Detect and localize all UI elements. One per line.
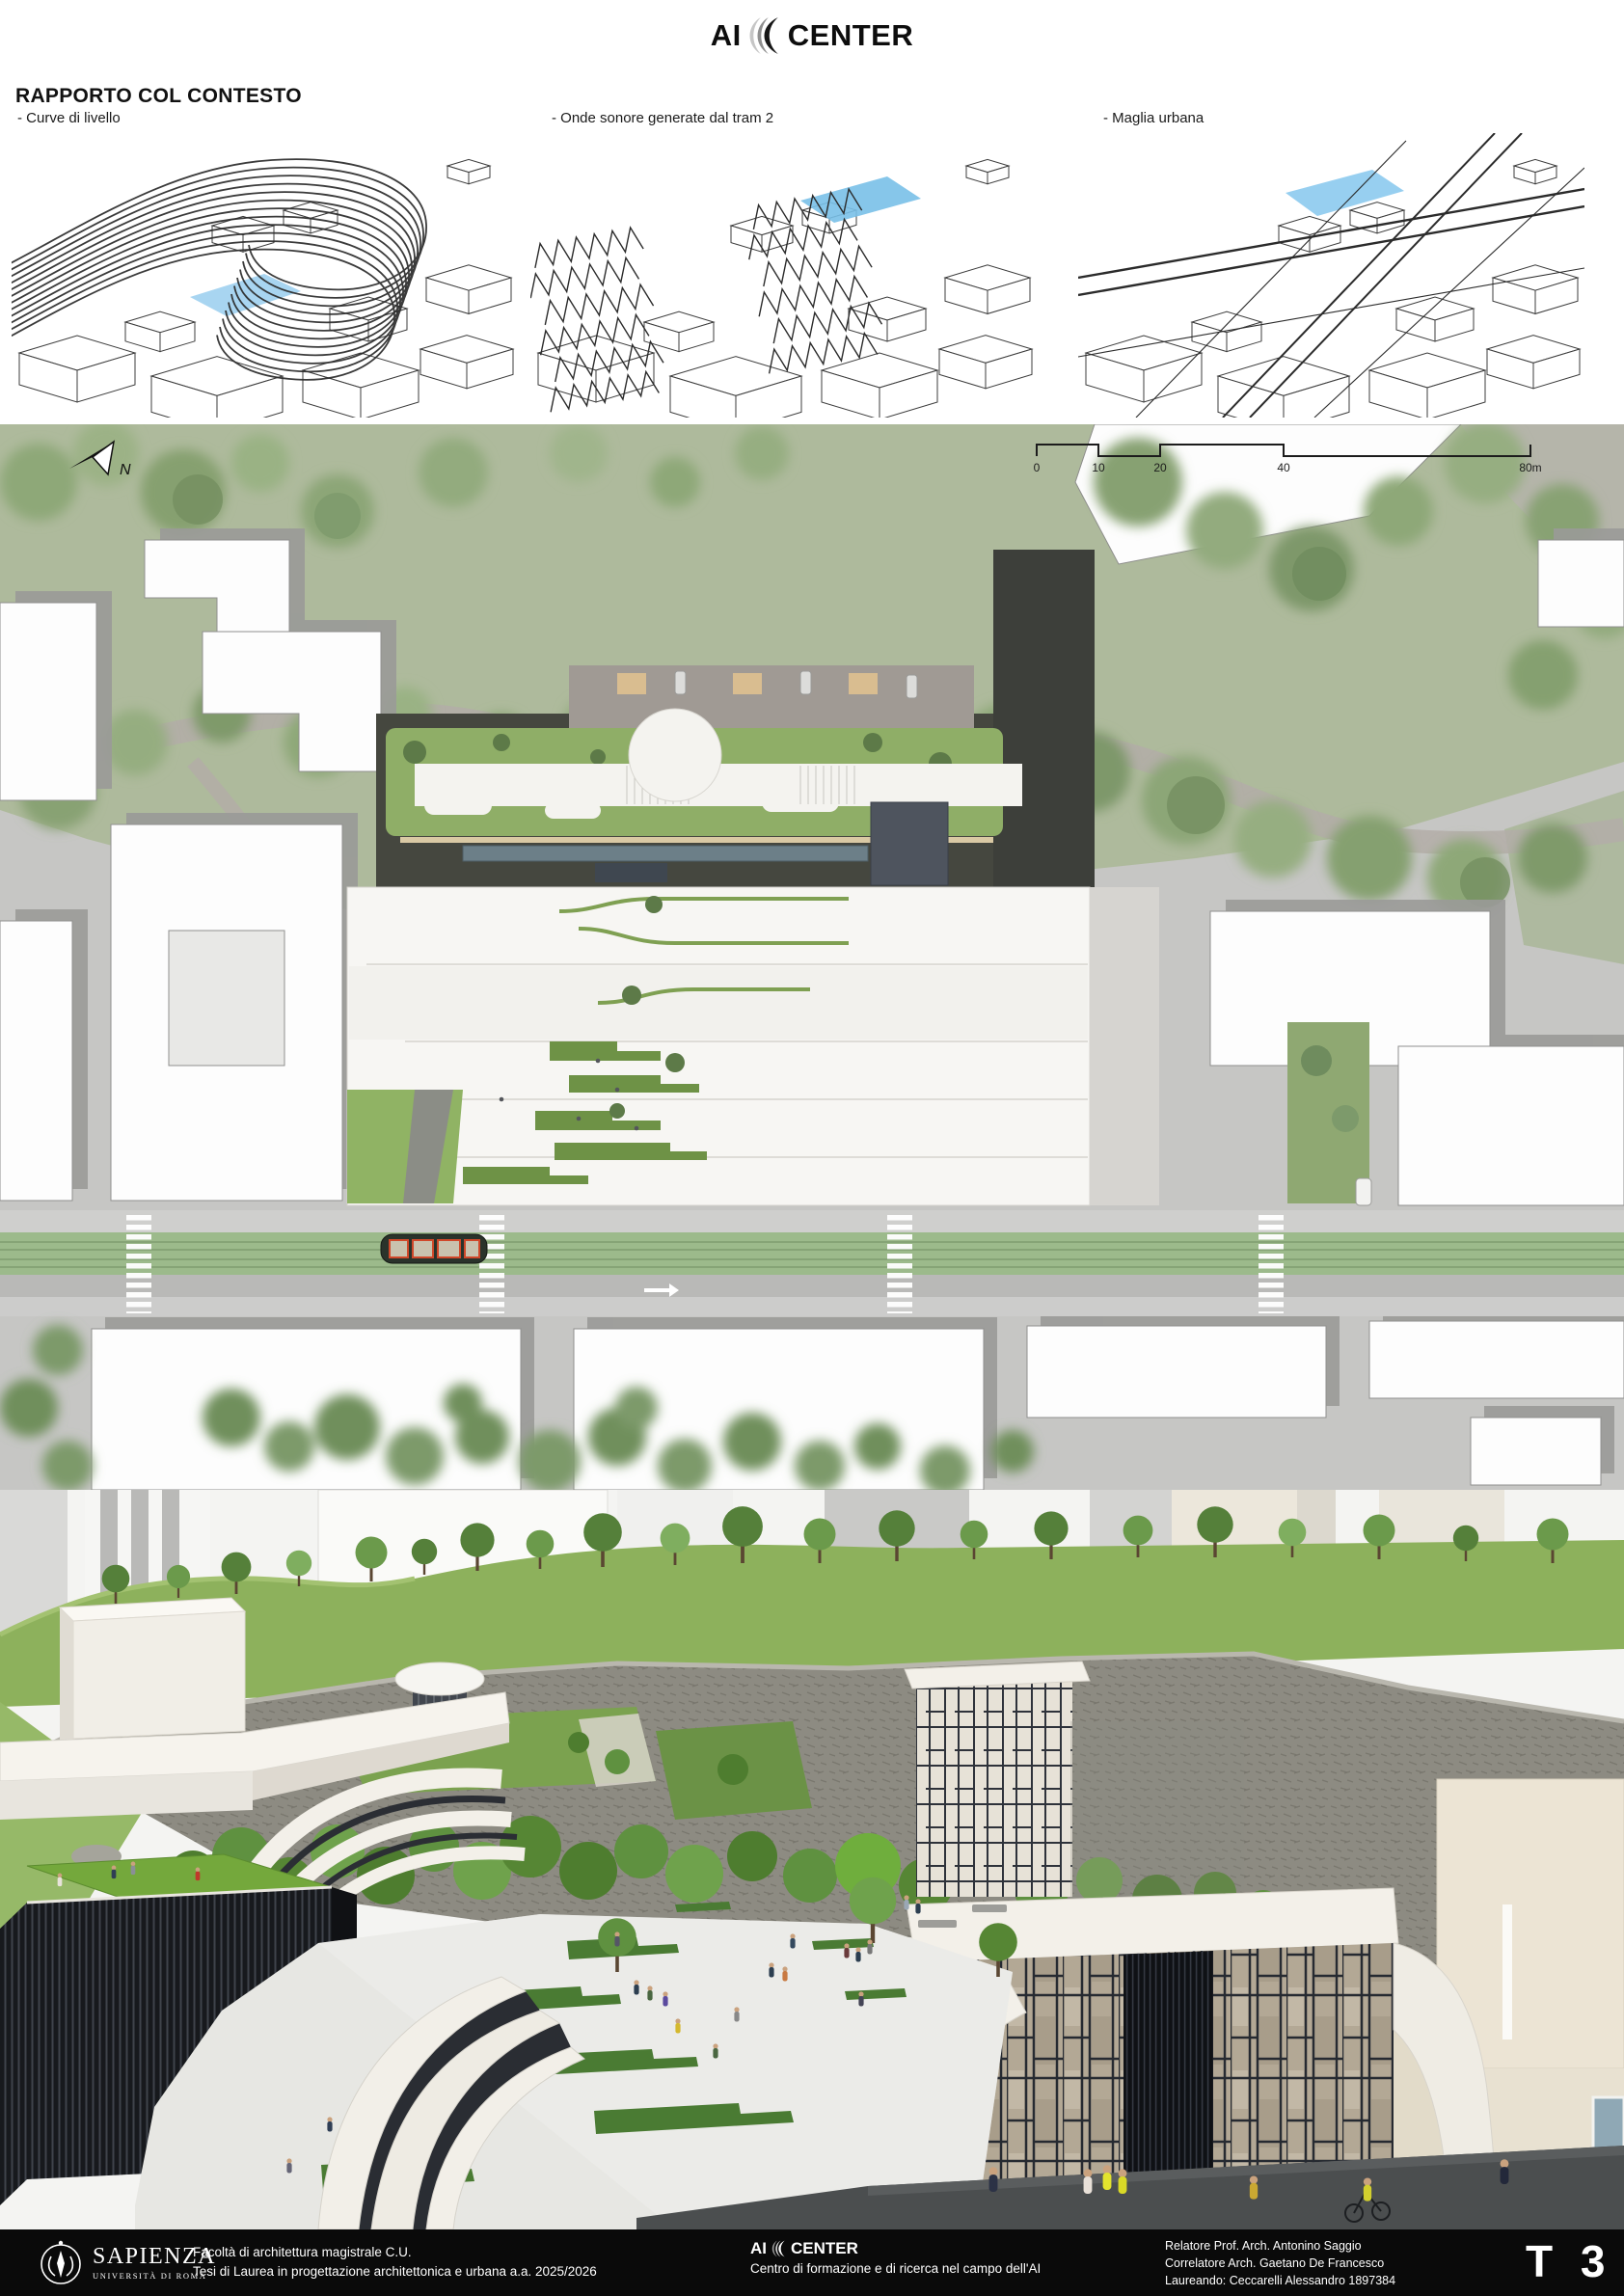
diagram-sound-waves: - Onde sonore generate dal tram 2 bbox=[530, 110, 1042, 418]
upper-grid-volume bbox=[905, 1661, 1090, 1897]
perspective-render bbox=[0, 1490, 1624, 2229]
car bbox=[1356, 1178, 1371, 1205]
tram-corridor bbox=[0, 1210, 1624, 1316]
faculty-line1: Facoltà di architettura magistrale C.U. bbox=[193, 2243, 597, 2262]
linear-pool bbox=[463, 846, 868, 861]
building-footprint bbox=[1398, 1046, 1624, 1205]
building-footprint bbox=[1471, 1418, 1601, 1485]
building-footprint bbox=[0, 603, 96, 800]
svg-text:0: 0 bbox=[1034, 461, 1041, 474]
skylight bbox=[595, 863, 667, 882]
credit-correlatore: Correlatore Arch. Gaetano De Francesco bbox=[1165, 2255, 1395, 2273]
building-footprint bbox=[1369, 1321, 1624, 1398]
logo-text-center: CENTER bbox=[788, 18, 913, 53]
north-label: N bbox=[120, 462, 131, 478]
diagram-grid-label: - Maglia urbana bbox=[1078, 110, 1589, 133]
thesis-credits: Relatore Prof. Arch. Antonino Saggio Cor… bbox=[1165, 2238, 1395, 2289]
project-logo-wave-icon bbox=[771, 2239, 786, 2258]
building-footprint bbox=[1538, 540, 1624, 627]
diagram-urban-grid: - Maglia urbana bbox=[1078, 110, 1589, 418]
tram-green-track bbox=[0, 1232, 1624, 1275]
credit-laureando: Laureando: Ceccarelli Alessandro 1897384 bbox=[1165, 2273, 1395, 2290]
svg-text:10: 10 bbox=[1092, 461, 1105, 474]
project-info: AI CENTER Centro di formazione e di rice… bbox=[750, 2239, 1041, 2276]
faculty-line2: Tesi di Laurea in progettazione architet… bbox=[193, 2262, 597, 2282]
white-cube-building bbox=[60, 1598, 245, 1746]
circular-canopy bbox=[629, 709, 721, 801]
site-plan-render: N 0 10 20 40 80m bbox=[0, 424, 1624, 1490]
building-footprint bbox=[1027, 1326, 1326, 1418]
slate-volume bbox=[871, 802, 948, 885]
project-logo-ai: AI bbox=[750, 2239, 767, 2258]
diagram-sound-label: - Onde sonore generate dal tram 2 bbox=[530, 110, 1042, 133]
svg-text:80m: 80m bbox=[1519, 461, 1541, 474]
diagram-contour-lines: - Curve di livello bbox=[12, 110, 523, 418]
project-logo-center: CENTER bbox=[791, 2239, 858, 2258]
diagram-contour-drawing bbox=[12, 133, 518, 418]
diagram-contour-label: - Curve di livello bbox=[12, 110, 523, 133]
logo-wave-icon bbox=[748, 15, 781, 56]
ai-center-logo: AI CENTER bbox=[711, 15, 913, 56]
page-title: RAPPORTO COL CONTESTO bbox=[15, 85, 302, 108]
project-subtitle: Centro di formazione e di ricerca nel ca… bbox=[750, 2261, 1041, 2276]
building-footprint bbox=[0, 921, 72, 1201]
project-logo: AI CENTER bbox=[750, 2239, 1041, 2258]
sheet-number: T 3 bbox=[1526, 2235, 1612, 2287]
faculty-info: Facoltà di architettura magistrale C.U. … bbox=[193, 2243, 597, 2282]
sapienza-emblem-icon bbox=[39, 2239, 83, 2287]
diagram-grid-drawing bbox=[1078, 133, 1584, 418]
diagram-sound-drawing bbox=[530, 133, 1037, 418]
svg-text:20: 20 bbox=[1153, 461, 1167, 474]
presentation-board: AI CENTER RAPPORTO COL CONTESTO - Curve … bbox=[0, 0, 1624, 2296]
credit-relatore: Relatore Prof. Arch. Antonino Saggio bbox=[1165, 2238, 1395, 2255]
tram-icon bbox=[381, 1234, 487, 1263]
building-courtyard bbox=[169, 931, 284, 1066]
logo-text-ai: AI bbox=[711, 18, 742, 53]
board-footer: SAPIENZA UNIVERSITÀ DI ROMA Facoltà di a… bbox=[0, 2229, 1624, 2296]
svg-text:40: 40 bbox=[1277, 461, 1290, 474]
